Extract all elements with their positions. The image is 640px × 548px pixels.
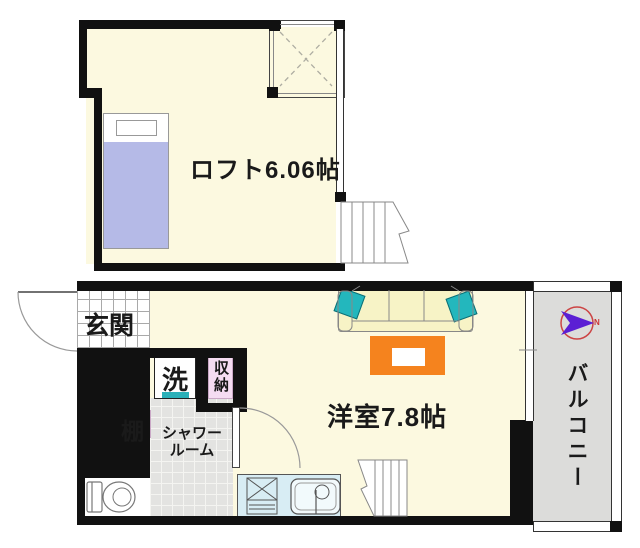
shower-room-label-line2: ルーム bbox=[150, 442, 234, 459]
shower-room-label-line1: シャワー bbox=[150, 425, 234, 442]
bed-pillow bbox=[116, 120, 157, 136]
bed-blanket bbox=[104, 142, 168, 248]
balcony-corner-post-bottom bbox=[610, 521, 622, 532]
void-skylight bbox=[269, 20, 345, 98]
entrance-door-arc bbox=[18, 292, 77, 351]
wall-loft-right-post bbox=[335, 192, 346, 202]
main-room-label: 洋室7.8帖 bbox=[327, 397, 447, 434]
storage-label: 収納 bbox=[212, 360, 229, 394]
toilet-floor bbox=[84, 478, 150, 517]
wall-balcony-bottom bbox=[533, 521, 622, 532]
wall-balcony-top bbox=[533, 281, 622, 292]
balcony-corner-post-top bbox=[610, 281, 622, 292]
washer-label: 洗 bbox=[162, 360, 188, 397]
balcony-label: バルコニー bbox=[561, 362, 591, 492]
shelf-label: 棚 bbox=[121, 412, 144, 446]
stairs-upper bbox=[341, 202, 409, 263]
wall-balcony-right bbox=[611, 281, 622, 532]
wall-utility-mid-strip bbox=[196, 352, 208, 404]
loft-room-label: ロフト6.06帖 bbox=[190, 150, 341, 185]
wall-balcony-side-lower bbox=[510, 420, 533, 525]
wall-main-bottom bbox=[77, 516, 533, 525]
floor-plan: ロフト6.06帖 洋室7.8帖 玄関 洗 収納 棚 シャワー ルーム バルコニー… bbox=[0, 0, 640, 548]
wall-loft-left-lower bbox=[94, 88, 102, 270]
wall-loft-top bbox=[79, 20, 281, 29]
entrance-label: 玄関 bbox=[84, 306, 134, 342]
kitchen-counter bbox=[237, 474, 341, 517]
wall-main-top bbox=[77, 281, 533, 291]
shower-room-label: シャワー ルーム bbox=[150, 425, 234, 459]
wall-loft-left-upper bbox=[79, 20, 87, 98]
table-inner bbox=[392, 348, 425, 366]
compass-north-label: N bbox=[594, 318, 600, 327]
void-corner-tl bbox=[269, 20, 280, 31]
void-corner-bl bbox=[267, 87, 278, 98]
window-balcony bbox=[525, 291, 534, 421]
wall-loft-bottom bbox=[94, 263, 345, 271]
